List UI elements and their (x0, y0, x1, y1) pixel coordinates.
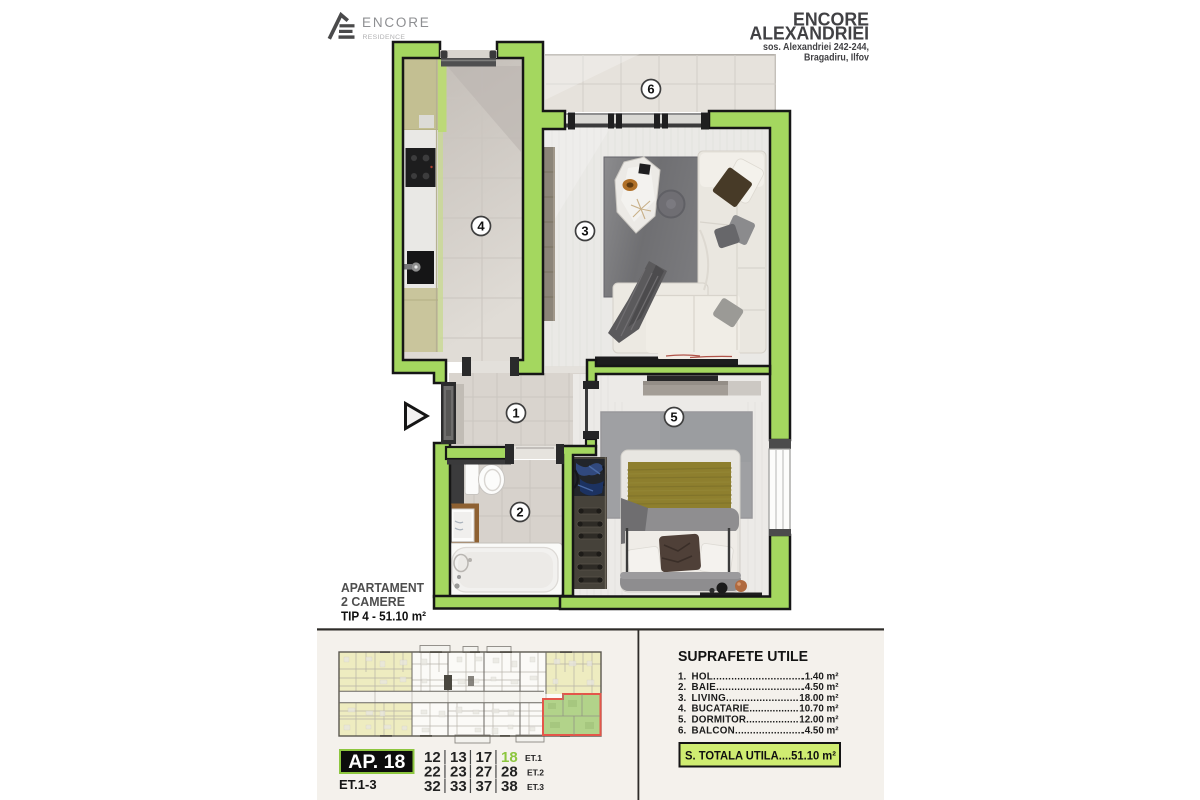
svg-text:18.00 m²: 18.00 m² (799, 693, 839, 704)
svg-text:HOL...........................: HOL.............................. (692, 671, 804, 682)
svg-text:6: 6 (647, 82, 654, 97)
svg-text:ET.1: ET.1 (525, 753, 542, 763)
svg-text:4: 4 (477, 219, 485, 234)
svg-text:.4.50 m²: .4.50 m² (802, 682, 839, 693)
svg-text:ET.2: ET.2 (527, 768, 544, 778)
svg-text:2 CAMERE: 2 CAMERE (341, 595, 405, 609)
svg-text:ALEXANDRIEI: ALEXANDRIEI (750, 24, 870, 44)
svg-text:3: 3 (581, 224, 588, 239)
svg-text:1.: 1. (678, 671, 686, 682)
svg-text:TIP 4 - 51.10 m²: TIP 4 - 51.10 m² (341, 609, 427, 624)
svg-text:6.: 6. (678, 725, 686, 736)
svg-text:12.00 m²: 12.00 m² (799, 715, 839, 726)
svg-text:38: 38 (501, 778, 518, 795)
svg-text:32: 32 (424, 778, 441, 795)
svg-text:5: 5 (670, 410, 677, 425)
svg-text:37: 37 (476, 778, 493, 795)
svg-text:APARTAMENT: APARTAMENT (341, 581, 424, 595)
svg-text:S. TOTALA UTILA....51.10 m²: S. TOTALA UTILA....51.10 m² (685, 749, 836, 763)
svg-text:SUPRAFETE UTILE: SUPRAFETE UTILE (678, 649, 808, 665)
svg-text:10.70 m²: 10.70 m² (799, 704, 839, 715)
svg-text:.1.40 m²: .1.40 m² (802, 671, 839, 682)
svg-text:|: | (469, 777, 473, 794)
svg-text:|: | (494, 777, 498, 794)
svg-text:33: 33 (450, 778, 467, 795)
svg-text:5.: 5. (678, 715, 686, 726)
svg-text:2: 2 (516, 505, 523, 520)
svg-text:|: | (443, 777, 447, 794)
svg-text:ET.1-3: ET.1-3 (339, 777, 377, 792)
svg-text:2.: 2. (678, 682, 686, 693)
svg-text:DORMITOR..................: DORMITOR.................. (692, 715, 799, 726)
svg-text:sos. Alexandriei 242-244,: sos. Alexandriei 242-244, (763, 42, 869, 53)
svg-text:BALCON.......................: BALCON....................... (692, 725, 804, 736)
svg-text:3.: 3. (678, 693, 686, 704)
svg-text:RESIDENCE: RESIDENCE (363, 34, 406, 41)
svg-text:1: 1 (512, 406, 519, 421)
svg-text:LIVING........................: LIVING........................ (692, 693, 799, 704)
svg-text:ENCORE: ENCORE (362, 15, 432, 30)
svg-text:BUCATARIE.................: BUCATARIE................. (692, 704, 799, 715)
svg-text:.4.50 m²: .4.50 m² (802, 725, 839, 736)
svg-text:BAIE..........................: BAIE............................. (692, 682, 804, 693)
svg-text:ET.3: ET.3 (527, 782, 544, 792)
svg-text:4.: 4. (678, 704, 686, 715)
svg-text:Bragadiru, Ilfov: Bragadiru, Ilfov (804, 53, 869, 64)
svg-text:AP. 18: AP. 18 (348, 751, 405, 773)
